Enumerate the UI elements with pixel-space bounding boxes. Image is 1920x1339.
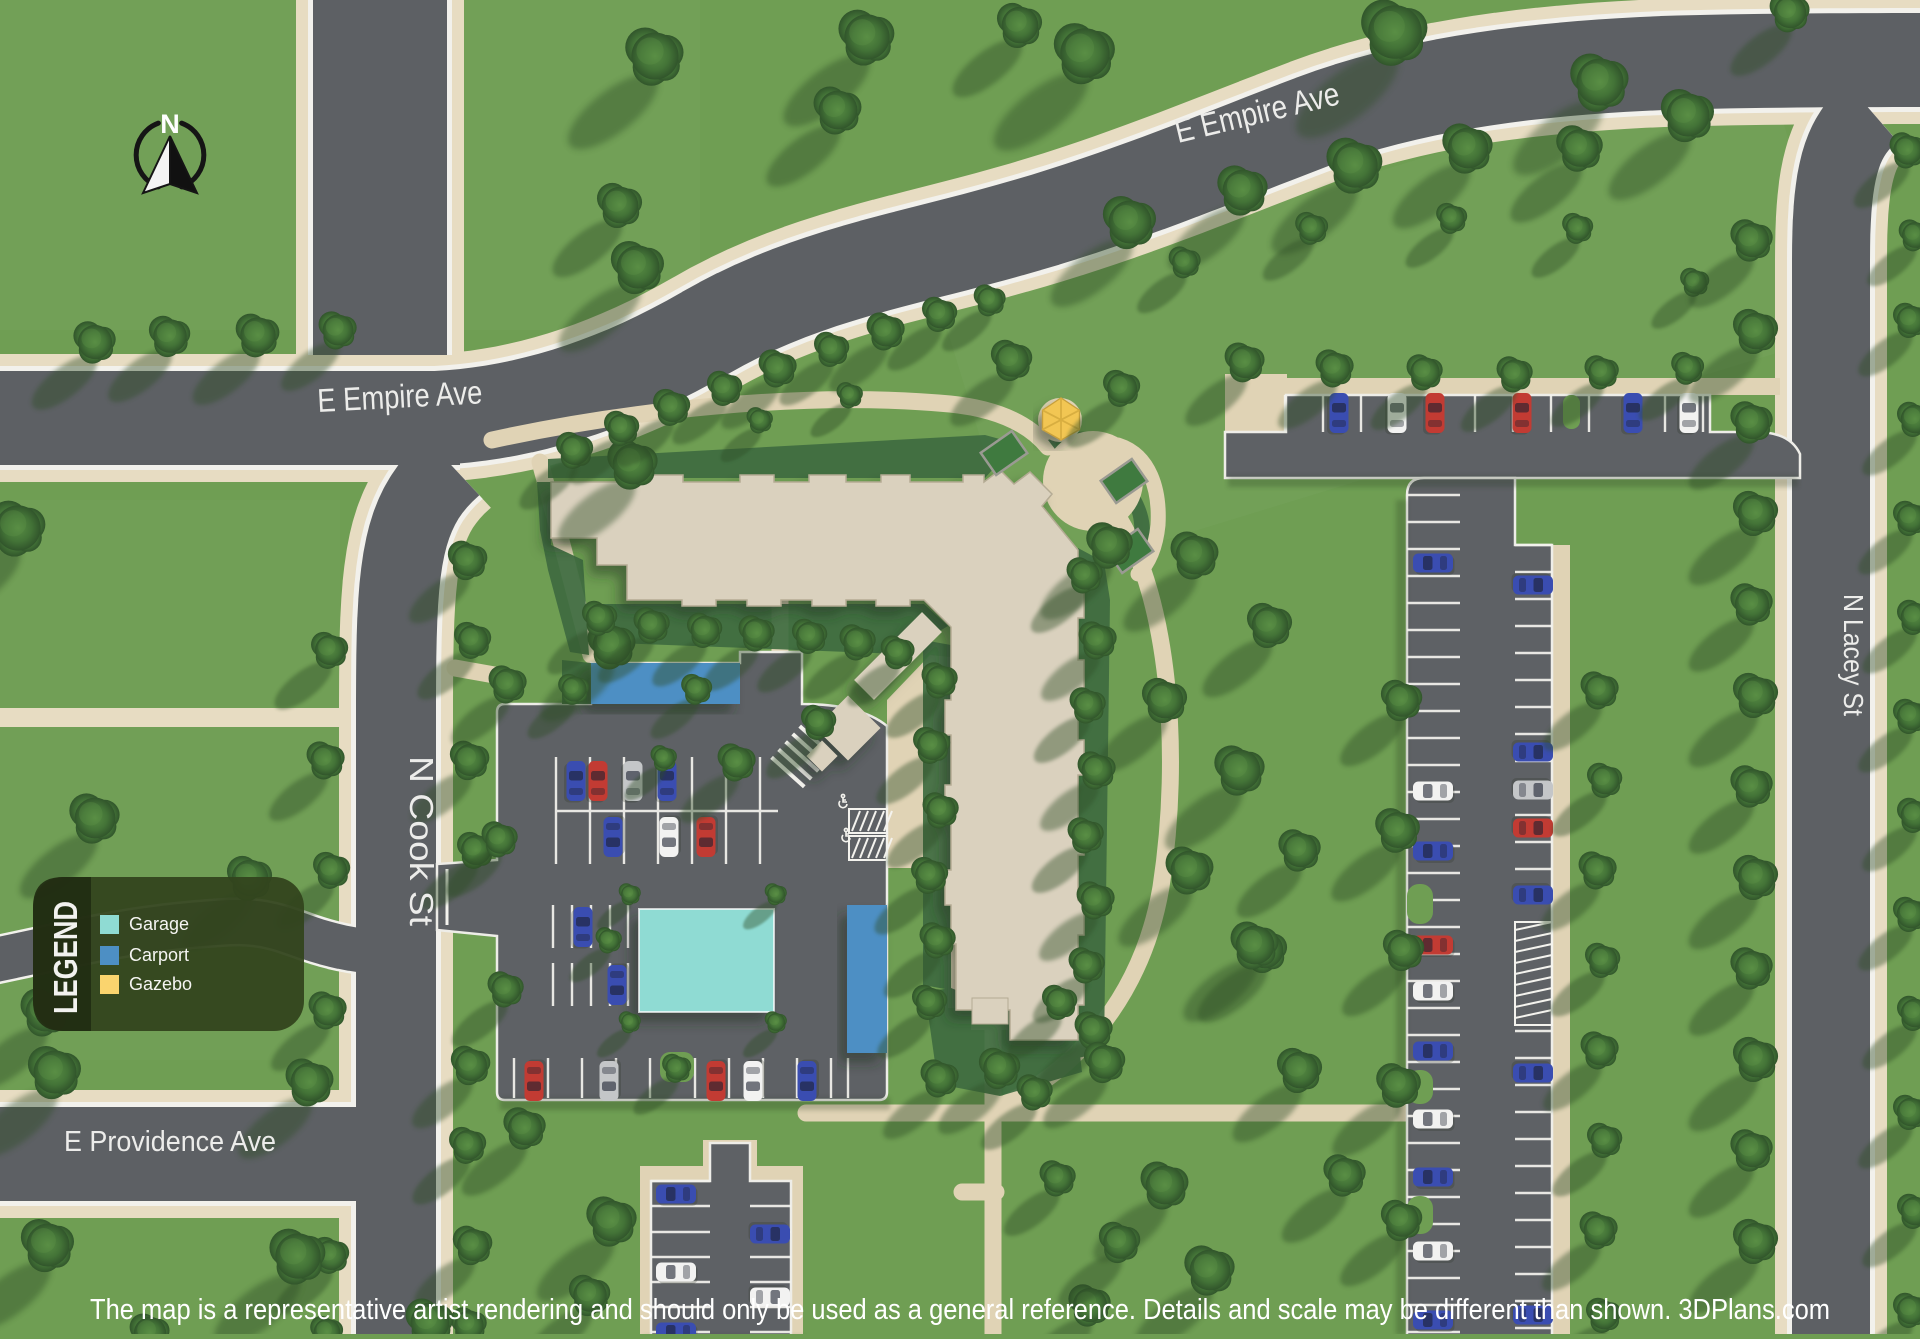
svg-text:Gazebo: Gazebo xyxy=(129,974,192,994)
svg-text:Garage: Garage xyxy=(129,914,189,934)
svg-text:N Cook St: N Cook St xyxy=(403,756,440,926)
svg-text:N Lacey St: N Lacey St xyxy=(1838,594,1869,716)
svg-text:N: N xyxy=(160,109,180,139)
svg-text:LEGEND: LEGEND xyxy=(47,901,84,1014)
svg-text:E Providence Ave: E Providence Ave xyxy=(64,1126,276,1158)
svg-text:Carport: Carport xyxy=(129,945,189,965)
svg-text:The map is a representative ar: The map is a representative artist rende… xyxy=(90,1294,1830,1326)
